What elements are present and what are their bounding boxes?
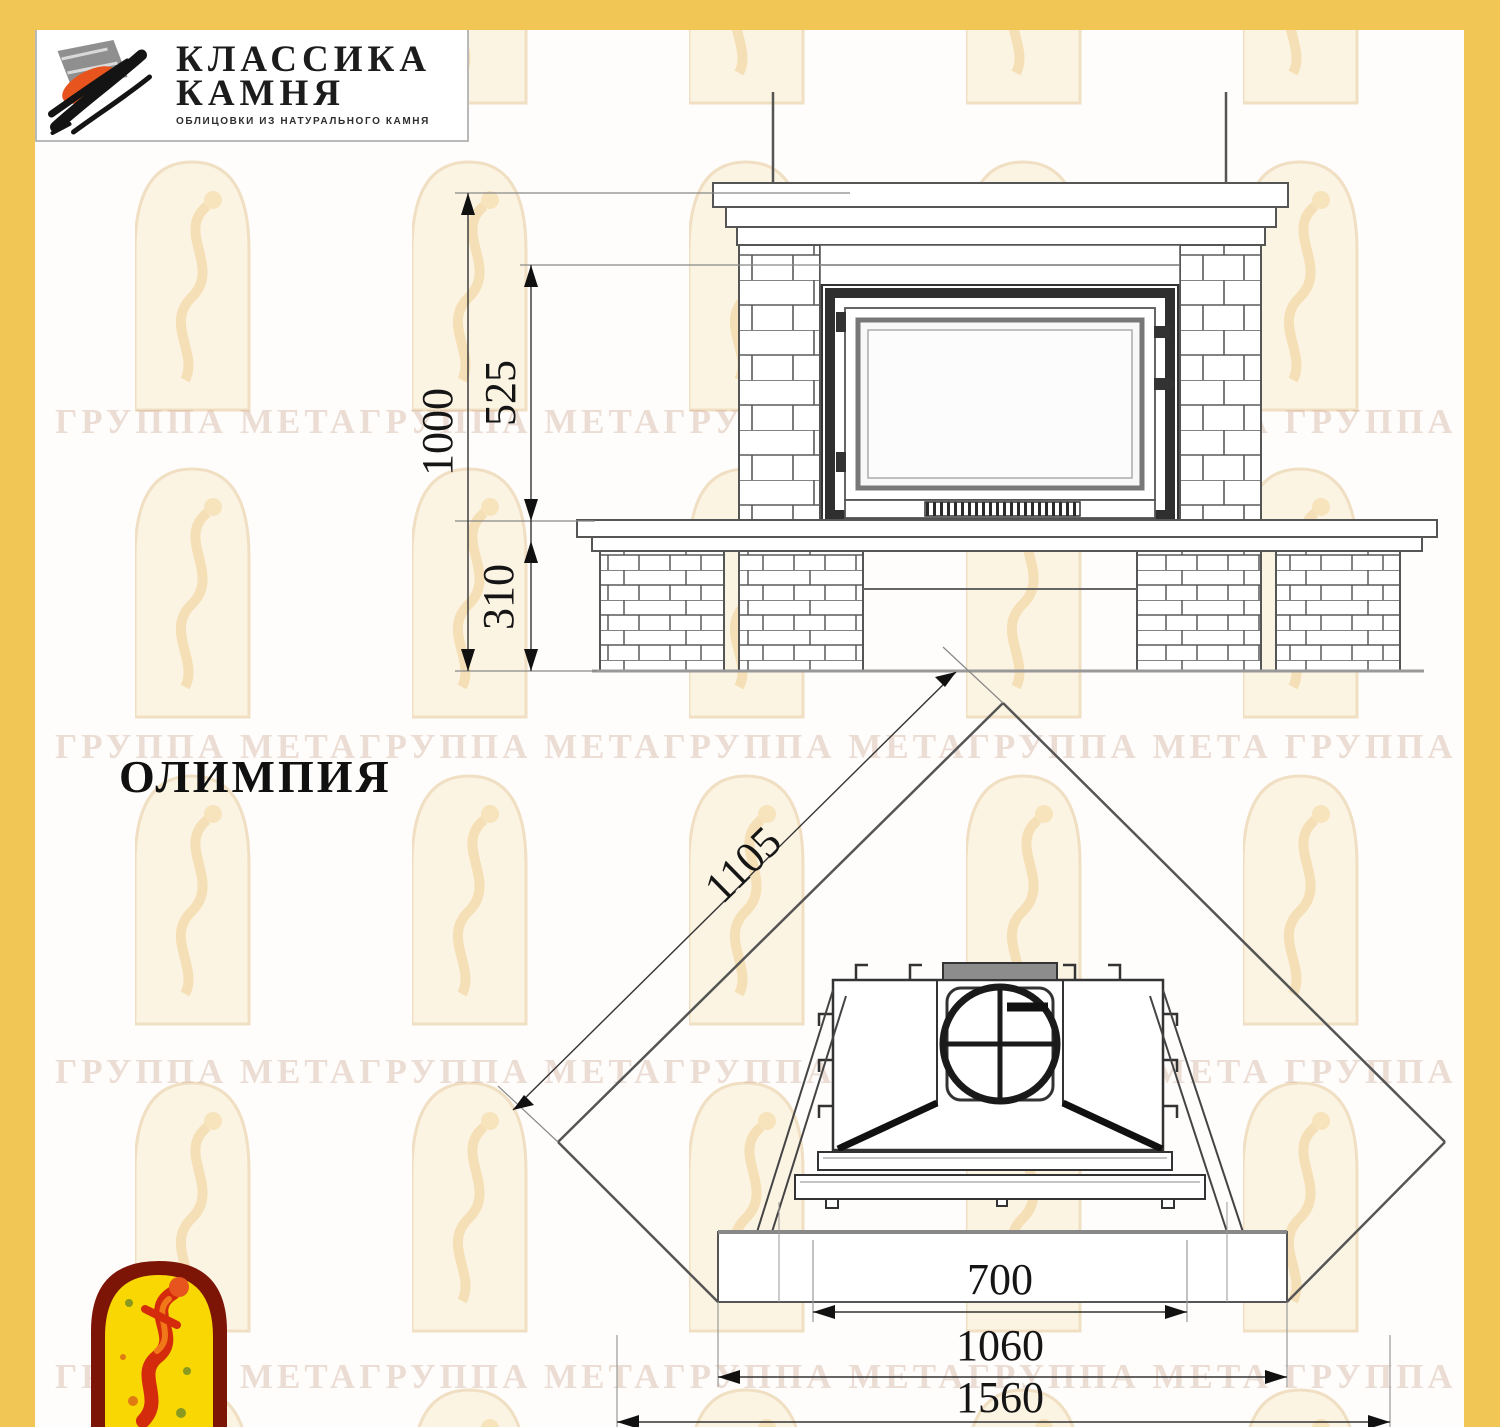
door-latch-top xyxy=(1154,326,1170,338)
company-logo: КЛАССИКА КАМНЯ ОБЛИЦОВКИ ИЗ НАТУРАЛЬНОГО… xyxy=(35,30,469,142)
brick-column-left xyxy=(739,245,820,527)
logo-title-line2: КАМНЯ xyxy=(176,77,431,111)
logo-title-line1: КЛАССИКА xyxy=(176,43,431,77)
plan-view: 1105 xyxy=(498,647,1445,1427)
brand-emblem xyxy=(85,1253,233,1427)
brick-column-right xyxy=(1180,245,1261,527)
mantel-tier-2 xyxy=(726,207,1276,227)
vent-grille xyxy=(925,502,1080,516)
hearth-shelf xyxy=(577,520,1437,537)
page-frame-top xyxy=(0,0,1500,30)
base-pedestal-3 xyxy=(1137,551,1261,671)
logo-text-block: КЛАССИКА КАМНЯ ОБЛИЦОВКИ ИЗ НАТУРАЛЬНОГО… xyxy=(176,43,431,127)
door-hinge-top xyxy=(836,312,846,332)
hearth-front-rail xyxy=(795,1175,1205,1199)
fireplace-technical-drawing: 1000 525 310 1105 xyxy=(35,30,1464,1427)
dim-label-firebox-width: 700 xyxy=(967,1255,1033,1304)
logo-stone-mark xyxy=(45,35,170,135)
hearth-shelf-lower xyxy=(592,537,1422,551)
dim-label-side-wall: 1105 xyxy=(695,817,791,912)
flue-collar-bar xyxy=(943,963,1057,980)
front-view: 1000 525 310 xyxy=(413,92,1437,671)
dim-label-hearth-width: 1060 xyxy=(956,1321,1044,1370)
wall-right-lower-edge xyxy=(1287,1142,1445,1302)
dim-label-firebox-height: 525 xyxy=(476,360,525,426)
mantel-tier-3 xyxy=(737,227,1265,245)
catalog-page: ГРУППА МЕТАГРУППА МЕТАГРУППА МЕТАГРУППА … xyxy=(35,30,1464,1427)
base-pedestal-1 xyxy=(600,551,724,671)
wall-left-lower-edge xyxy=(558,1142,718,1302)
door-hinge-bottom xyxy=(836,452,846,472)
base-pedestal-4 xyxy=(1276,551,1400,671)
base-pedestal-2 xyxy=(739,551,863,671)
dim-label-total-height: 1000 xyxy=(413,388,462,476)
mantel-shelf xyxy=(713,183,1288,207)
page-frame-right xyxy=(1464,0,1500,1427)
logo-subtitle: ОБЛИЦОВКИ ИЗ НАТУРАЛЬНОГО КАМНЯ xyxy=(176,116,431,127)
firebox-front-rail xyxy=(818,1152,1172,1170)
page-frame-left xyxy=(0,0,35,1427)
model-name-label: ОЛИМПИЯ xyxy=(119,750,392,803)
dim-label-base-height: 310 xyxy=(474,564,523,630)
dim-label-total-width: 1560 xyxy=(956,1373,1044,1422)
